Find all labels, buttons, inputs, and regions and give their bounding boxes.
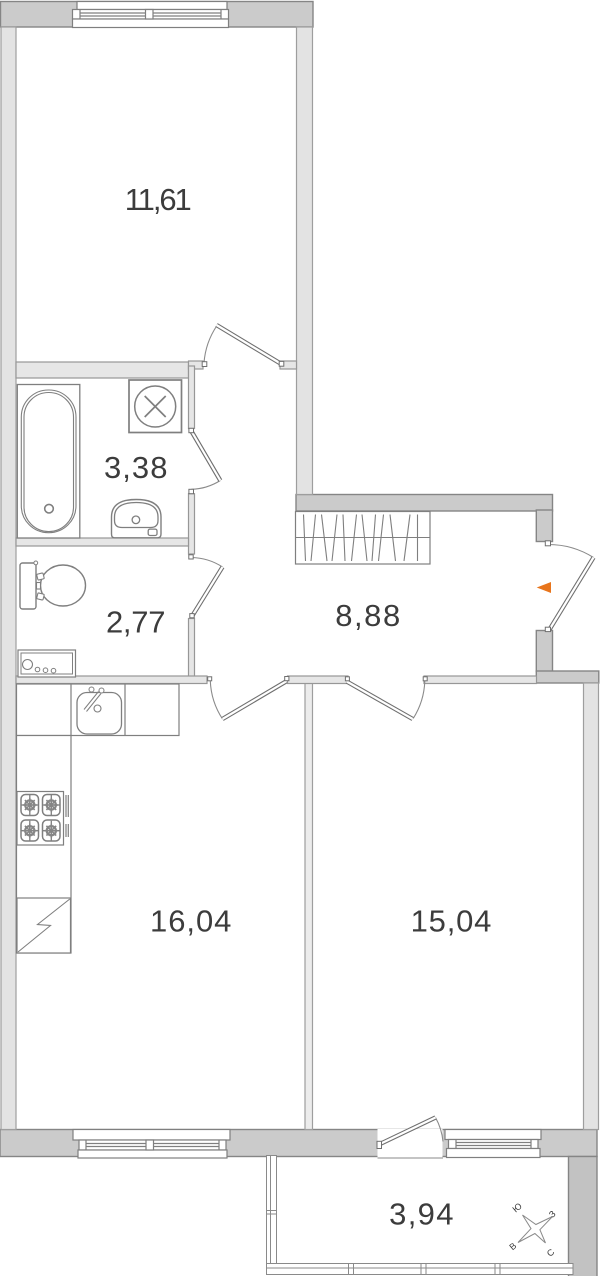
svg-text:3,38: 3,38	[104, 450, 168, 485]
svg-text:2,77: 2,77	[106, 605, 166, 640]
svg-text:15,04: 15,04	[411, 904, 492, 939]
svg-text:11,61: 11,61	[125, 182, 192, 217]
svg-text:16,04: 16,04	[150, 904, 231, 939]
svg-text:8,88: 8,88	[335, 598, 400, 633]
svg-text:3,94: 3,94	[389, 1197, 453, 1232]
